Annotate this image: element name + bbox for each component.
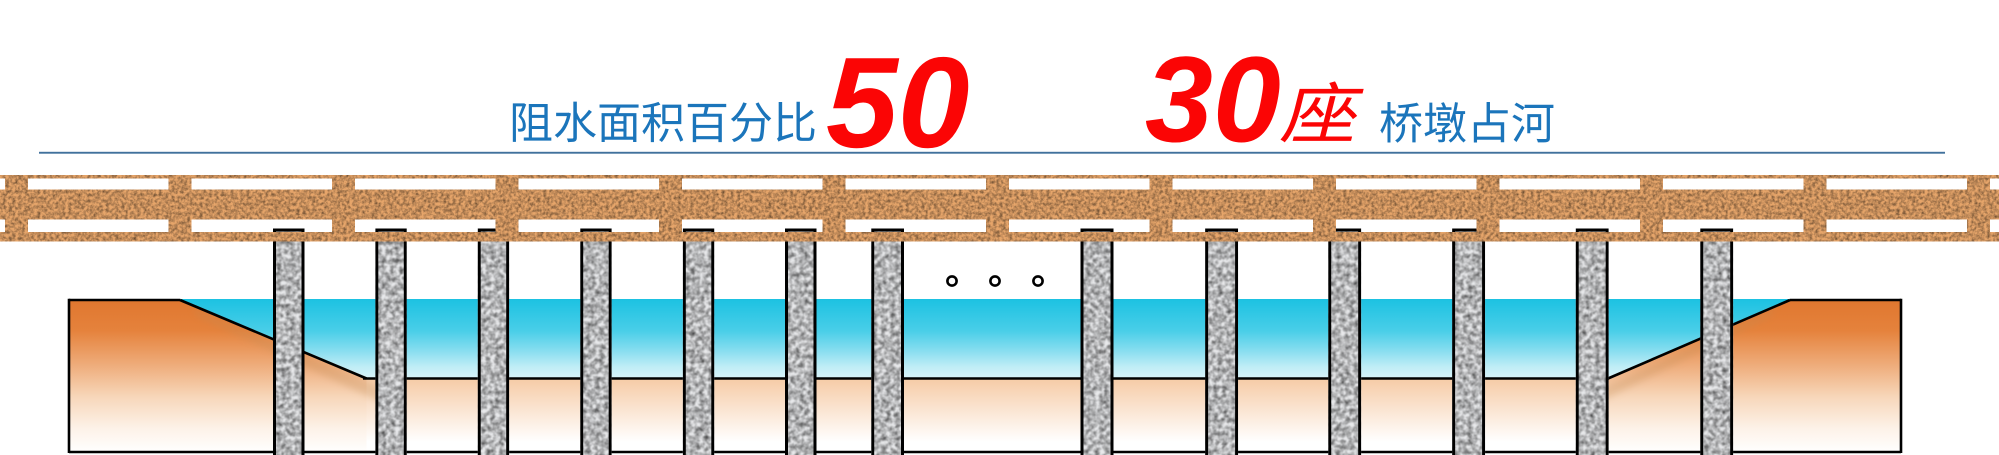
svg-text:30: 30 — [1145, 32, 1281, 168]
